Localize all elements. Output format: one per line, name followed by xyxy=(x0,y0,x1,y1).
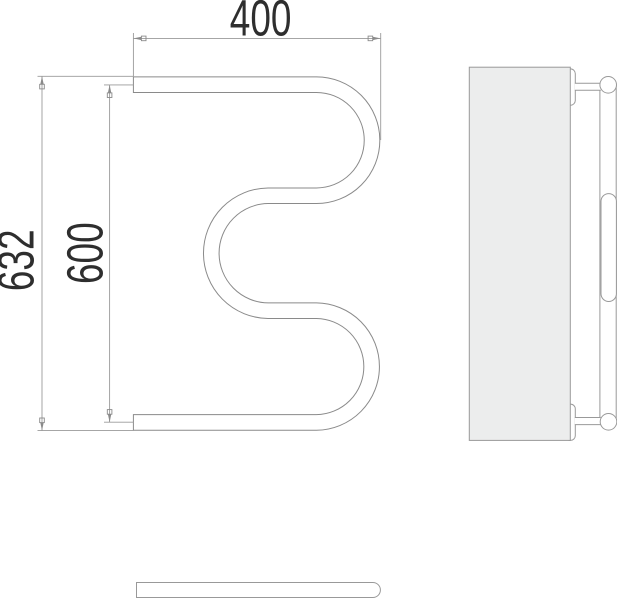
svg-text:632: 632 xyxy=(0,229,45,291)
svg-text:600: 600 xyxy=(58,222,114,284)
svg-text:400: 400 xyxy=(230,0,292,47)
